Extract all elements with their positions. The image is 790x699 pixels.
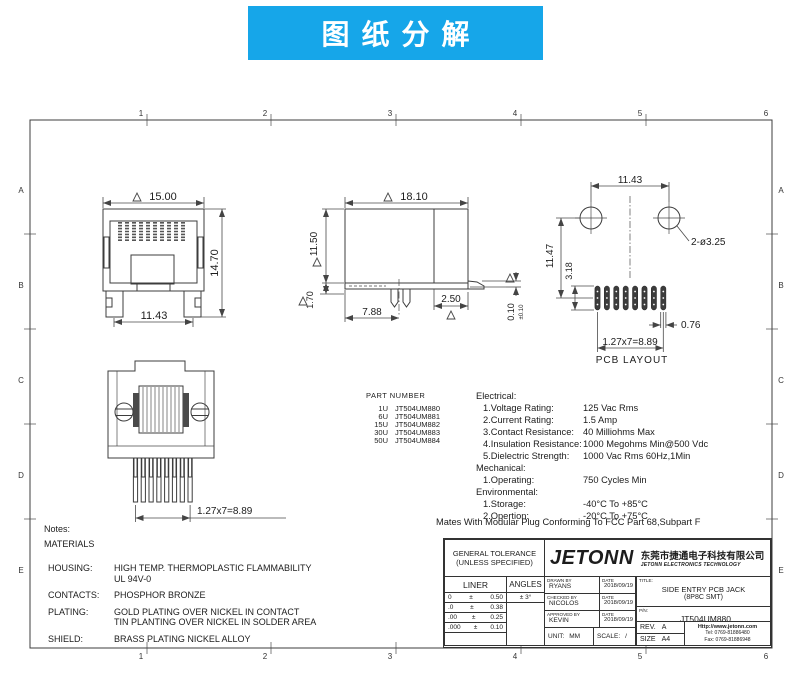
zone-label: 2 (263, 109, 268, 118)
part-pn: JT504UM884 (395, 437, 440, 445)
spec-value: 1000 Vac Rms 60Hz,1Min (583, 450, 690, 462)
spec-label: 2.Current Rating: (483, 414, 583, 426)
size-cell: SIZE A4 (636, 633, 685, 646)
unit-value: MM (569, 633, 580, 640)
spec-label: 1.Operating: (483, 474, 583, 486)
spec-row: 1.Operating:750 Cycles Min (476, 474, 776, 486)
note-triangle-icon (313, 258, 321, 266)
spec-row: 5.Dielectric Strength:1000 Vac Rms 60Hz,… (476, 450, 776, 462)
checked-by-cell: CHECKED BY NICOLOS (544, 593, 600, 611)
drawing-title-line1: SIDE ENTRY PCB JACK (637, 585, 770, 594)
company-names: 东莞市捷通电子科技有限公司 JETONN ELECTRONICS TECHNOL… (641, 548, 765, 568)
dim-pcb-pad-length: 3.18 (564, 262, 574, 280)
part-qty: 50U (366, 437, 388, 445)
dim-side-foot: 2.50 (441, 294, 461, 305)
approved-by-value: KEVIN (545, 617, 599, 624)
zone-label: A (778, 186, 784, 195)
company-box: JETONN 东莞市捷通电子科技有限公司 JETONN ELECTRONICS … (544, 539, 771, 577)
material-row: HOUSING: HIGH TEMP. THERMOPLASTIC FLAMMA… (44, 563, 364, 584)
material-value: GOLD PLATING OVER NICKEL IN CONTACT TIN … (114, 607, 364, 628)
drawn-by-value: RYANS (545, 583, 599, 590)
spec-section-heading: Mechanical: (476, 462, 776, 474)
dim-side-leg: 7.88 (362, 307, 382, 318)
pcb-layout-view: 11.43 2-ø3.25 11.47 3.18 0.76 1.27x7=8.8… (545, 175, 726, 366)
dim-front-width: 15.00 (149, 191, 177, 203)
material-label: CONTACTS: (44, 590, 114, 601)
scale-value: / (625, 633, 627, 640)
zone-label: B (778, 281, 783, 290)
spec-section-heading: Environmental: (476, 486, 776, 498)
zone-label: B (18, 281, 23, 290)
material-value: BRASS PLATING NICKEL ALLOY (114, 634, 364, 645)
spec-value: 750 Cycles Min (583, 474, 647, 486)
dim-pcb-pad-width: 0.76 (681, 320, 701, 331)
company-name-en: JETONN ELECTRONICS TECHNOLOGY (641, 562, 765, 568)
front-view: 15.00 14.70 11.43 (103, 191, 226, 327)
dim-front-height: 14.70 (209, 249, 221, 277)
zone-label: 3 (388, 652, 393, 661)
drawing-page: 图纸分解 (0, 0, 790, 699)
drawing-title-line2: (8P8C SMT) (637, 594, 770, 601)
zone-label: 1 (139, 109, 144, 118)
material-line: HIGH TEMP. THERMOPLASTIC FLAMMABILITY (114, 563, 364, 574)
unless-specified-label: (UNLESS SPECIFIED) (456, 558, 533, 567)
drawn-date-value: 2018/09/19 (600, 583, 635, 589)
zone-label: 4 (513, 109, 518, 118)
notes-block: Notes: MATERIALS HOUSING: HIGH TEMP. THE… (44, 524, 364, 650)
dim-side-plate: 1.70 (305, 291, 315, 309)
zone-label: D (18, 471, 24, 480)
unit-label: UNIT: (548, 633, 564, 640)
side-view: 18.10 11.50 1.70 7.88 2.50 0.10 ±0.10 (299, 191, 525, 322)
spec-row: 1.Storage:-40°C To +85°C (476, 498, 776, 510)
spec-value: 125 Vac Rms (583, 402, 638, 414)
material-row: PLATING: GOLD PLATING OVER NICKEL IN CON… (44, 607, 364, 628)
dim-side-standoff: 0.10 (506, 303, 516, 321)
spec-label: 4.Insulation Resistance: (483, 438, 583, 450)
specifications: Electrical: 1.Voltage Rating:125 Vac Rms… (476, 390, 776, 522)
spec-label: 3.Contact Resistance: (483, 426, 583, 438)
zone-label: 5 (638, 652, 643, 661)
zone-label: C (778, 376, 784, 385)
dim-pcb-pitch: 1.27x7=8.89 (602, 337, 658, 348)
company-fax: Fax: 0769-81886948 (685, 637, 770, 644)
zone-label: D (778, 471, 784, 480)
spec-row: 4.Insulation Resistance:1000 Megohms Min… (476, 438, 776, 450)
liner-header: LINER (444, 576, 507, 593)
zone-label: 5 (638, 109, 643, 118)
material-line: UL 94V-0 (114, 574, 364, 585)
zone-label: 1 (139, 652, 144, 661)
part-table-header: PART NUMBER (366, 392, 440, 400)
checked-date-cell: DATE 2018/09/19 (599, 593, 636, 611)
zone-label: 3 (388, 109, 393, 118)
zone-label: E (778, 566, 783, 575)
zone-label: 2 (263, 652, 268, 661)
zone-label: C (18, 376, 24, 385)
zone-label: A (18, 186, 24, 195)
dim-bottom-pitch: 1.27x7=8.89 (197, 506, 253, 517)
angles-header: ANGLES (506, 576, 545, 593)
material-line: GOLD PLATING OVER NICKEL IN CONTACT (114, 607, 364, 618)
rev-label: REV. (640, 624, 656, 631)
dim-side-width: 18.10 (400, 191, 428, 203)
note-triangle-icon (384, 193, 392, 201)
spec-row: 3.Contact Resistance:40 Milliohms Max (476, 426, 776, 438)
approved-date-cell: DATE 2018/09/19 (599, 610, 636, 628)
part-number-table: PART NUMBER 1UJT504UM880 6UJT504UM881 15… (366, 392, 440, 445)
angles-empty-cell (506, 602, 545, 646)
title-block: GENERAL TOLERANCE (UNLESS SPECIFIED) JET… (443, 538, 772, 648)
notes-title: Notes: (44, 524, 364, 534)
spec-value: 40 Milliohms Max (583, 426, 655, 438)
spec-label: 1.Voltage Rating: (483, 402, 583, 414)
approved-by-cell: APPROVED BY KEVIN (544, 610, 600, 628)
checked-by-value: NICOLOS (545, 600, 599, 607)
zone-label: 6 (764, 652, 769, 661)
checked-date-value: 2018/09/19 (600, 600, 635, 606)
material-label: HOUSING: (44, 563, 114, 584)
dim-pcb-height: 11.47 (545, 243, 556, 268)
tolerance-row-empty (444, 632, 507, 646)
scale-cell: SCALE: / (593, 627, 636, 646)
dim-side-height: 11.50 (309, 231, 320, 256)
jetonn-logo: JETONN (550, 547, 634, 570)
materials-heading: MATERIALS (44, 539, 364, 549)
size-label: SIZE (640, 636, 656, 643)
company-name-cn: 东莞市捷通电子科技有限公司 (641, 548, 765, 562)
material-row: SHIELD: BRASS PLATING NICKEL ALLOY (44, 634, 364, 645)
zone-label: E (18, 566, 23, 575)
general-tolerance-box: GENERAL TOLERANCE (UNLESS SPECIFIED) (444, 539, 545, 577)
spec-row: 2.Current Rating:1.5 Amp (476, 414, 776, 426)
spec-section-heading: Electrical: (476, 390, 776, 402)
approved-date-value: 2018/09/19 (600, 617, 635, 623)
dim-front-feet-span: 11.43 (141, 310, 168, 322)
scale-label: SCALE: (597, 633, 620, 640)
material-value: PHOSPHOR BRONZE (114, 590, 364, 601)
bottom-view: 1.27x7=8.89 (108, 361, 286, 522)
spec-label: 1.Storage: (483, 498, 583, 510)
note-triangle-icon (133, 193, 141, 201)
contact-cell: Http://www.jetonn.com Tel: 0769-81886480… (684, 621, 771, 646)
drawn-by-cell: DRAWN BY RYANS (544, 576, 600, 594)
unit-cell: UNIT: MM (544, 627, 594, 646)
dim-side-standoff-tol: ±0.10 (519, 304, 525, 320)
table-row: 50UJT504UM884 (366, 437, 440, 445)
spec-row: 1.Voltage Rating:125 Vac Rms (476, 402, 776, 414)
general-tolerance-label: GENERAL TOLERANCE (453, 549, 536, 558)
title-label: TITLE: (637, 577, 770, 583)
material-label: SHIELD: (44, 634, 114, 645)
zone-label: 6 (764, 109, 769, 118)
dim-pcb-hole-dia: 2-ø3.25 (691, 237, 726, 248)
pcb-layout-label: PCB LAYOUT (596, 355, 669, 366)
part-number-cell: P/N: JT504UM880 (636, 606, 771, 622)
spec-value: 1.5 Amp (583, 414, 617, 426)
material-row: CONTACTS: PHOSPHOR BRONZE (44, 590, 364, 601)
mating-footnote: Mates With Modular Plug Conforming To FC… (436, 517, 766, 527)
material-label: PLATING: (44, 607, 114, 628)
dim-pcb-hole-span: 11.43 (618, 175, 643, 186)
zone-label: 4 (513, 652, 518, 661)
spec-value: 1000 Megohms Min@500 Vdc (583, 438, 708, 450)
drawn-date-cell: DATE 2018/09/19 (599, 576, 636, 594)
rev-value: A (662, 624, 667, 631)
size-value: A4 (662, 636, 671, 643)
material-line: TIN PLANTING OVER NICKEL IN SOLDER AREA (114, 617, 364, 628)
title-cell: TITLE: SIDE ENTRY PCB JACK (8P8C SMT) (636, 576, 771, 607)
spec-label: 5.Dielectric Strength: (483, 450, 583, 462)
material-value: HIGH TEMP. THERMOPLASTIC FLAMMABILITY UL… (114, 563, 364, 584)
note-triangle-icon (447, 311, 455, 319)
spec-value: -40°C To +85°C (583, 498, 648, 510)
